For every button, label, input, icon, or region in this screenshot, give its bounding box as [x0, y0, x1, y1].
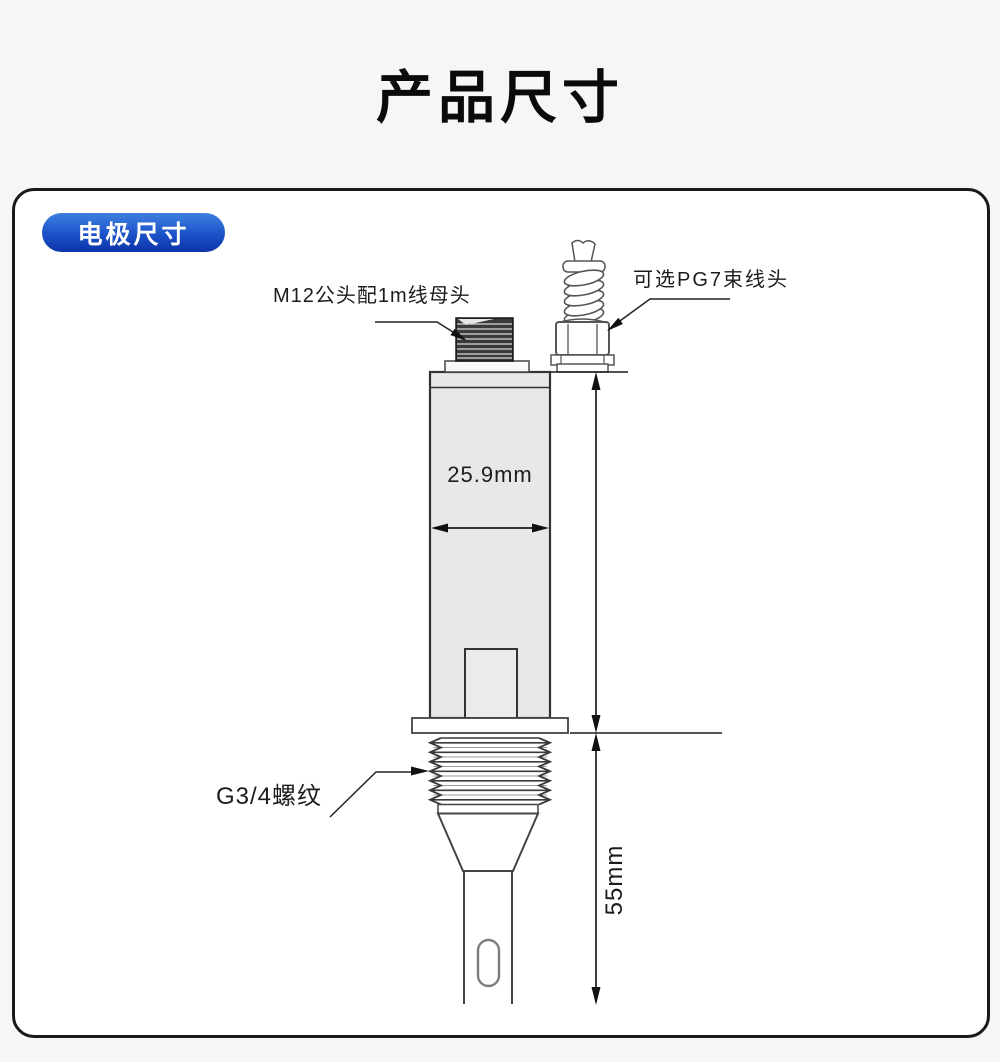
body-width-value: 25.9mm: [447, 462, 532, 487]
probe-slot: [478, 940, 499, 986]
probe-length-value: 55mm: [601, 845, 628, 916]
product-dimension-section: 产品尺寸 电极尺寸: [0, 0, 1000, 1062]
dimension-right-vertical: 55mm: [550, 372, 722, 1005]
pg7-label-group: 可选PG7束线头: [607, 268, 789, 331]
electrode-size-badge: 电极尺寸: [42, 213, 225, 252]
m12-connector-label: M12公头配1m线母头: [273, 284, 471, 307]
g34-thread-section: [430, 738, 550, 805]
sensor-body: [430, 372, 550, 718]
pg7-gland-label: 可选PG7束线头: [633, 268, 789, 291]
probe-shaft: [438, 805, 538, 1005]
electrode-diagram: 25.9mm 55mm M12公头配1m线母头 可选PG7束线头: [0, 0, 1000, 1062]
m12-label-group: M12公头配1m线母头: [273, 284, 471, 341]
mounting-flange: [412, 718, 568, 733]
electrode-size-badge-label: 电极尺寸: [77, 215, 189, 251]
pg7-cable-gland: [551, 241, 614, 373]
m12-connector-stub: [445, 318, 529, 372]
g34-label-group: G3/4螺纹: [216, 767, 429, 818]
g34-thread-label: G3/4螺纹: [216, 783, 322, 810]
